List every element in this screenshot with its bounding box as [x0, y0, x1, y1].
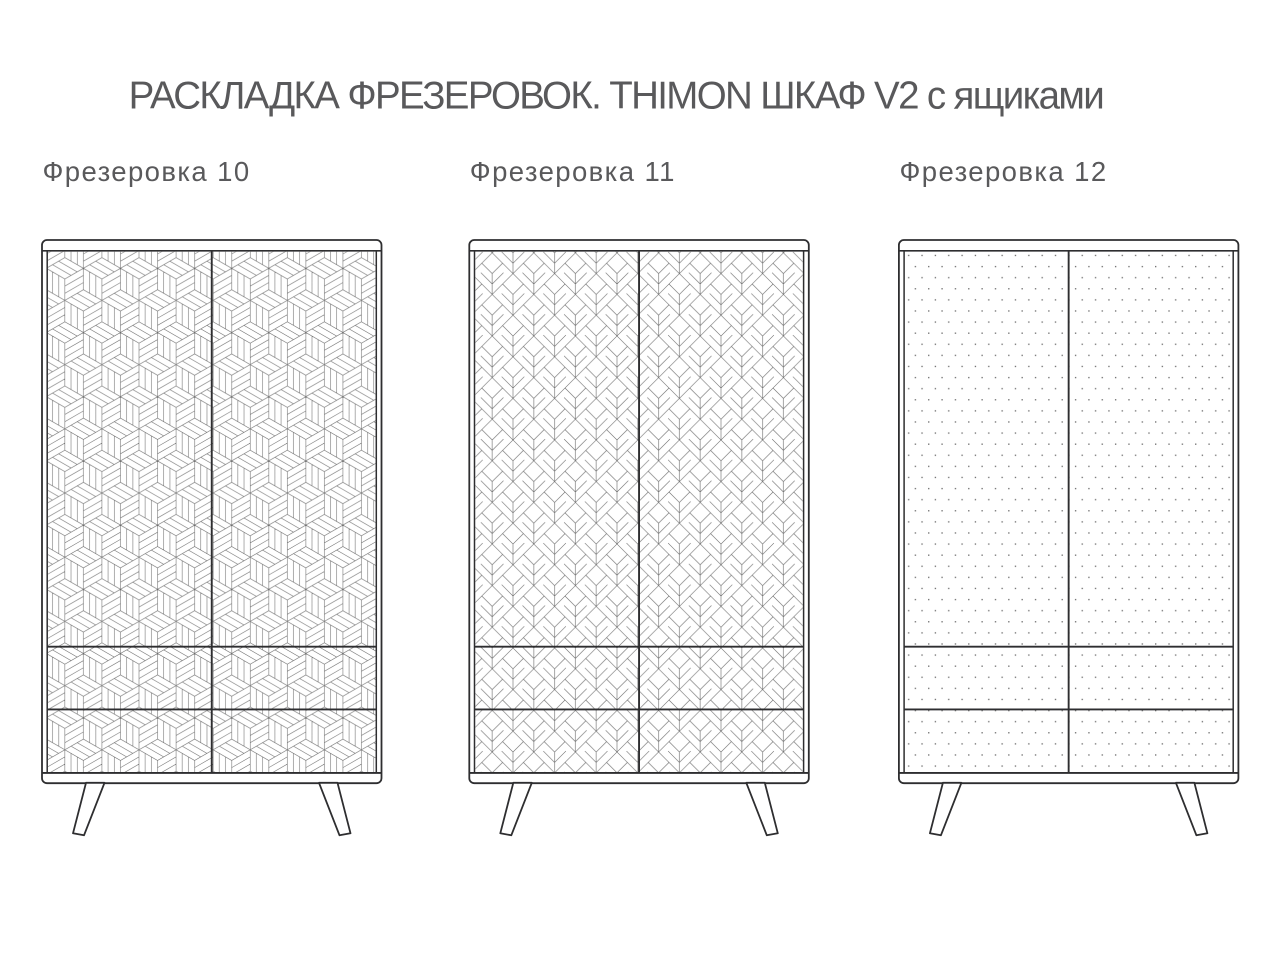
svg-text:РАСКЛАДКА ФРЕЗЕРОВОК. THIMON Ш: РАСКЛАДКА ФРЕЗЕРОВОК. THIMON ШКАФ V2 с я…: [129, 75, 1104, 118]
svg-text:Фрезеровка 11: Фрезеровка 11: [470, 156, 676, 187]
svg-text:Фрезеровка 12: Фрезеровка 12: [900, 156, 1108, 187]
svg-text:Фрезеровка 10: Фрезеровка 10: [43, 156, 251, 187]
